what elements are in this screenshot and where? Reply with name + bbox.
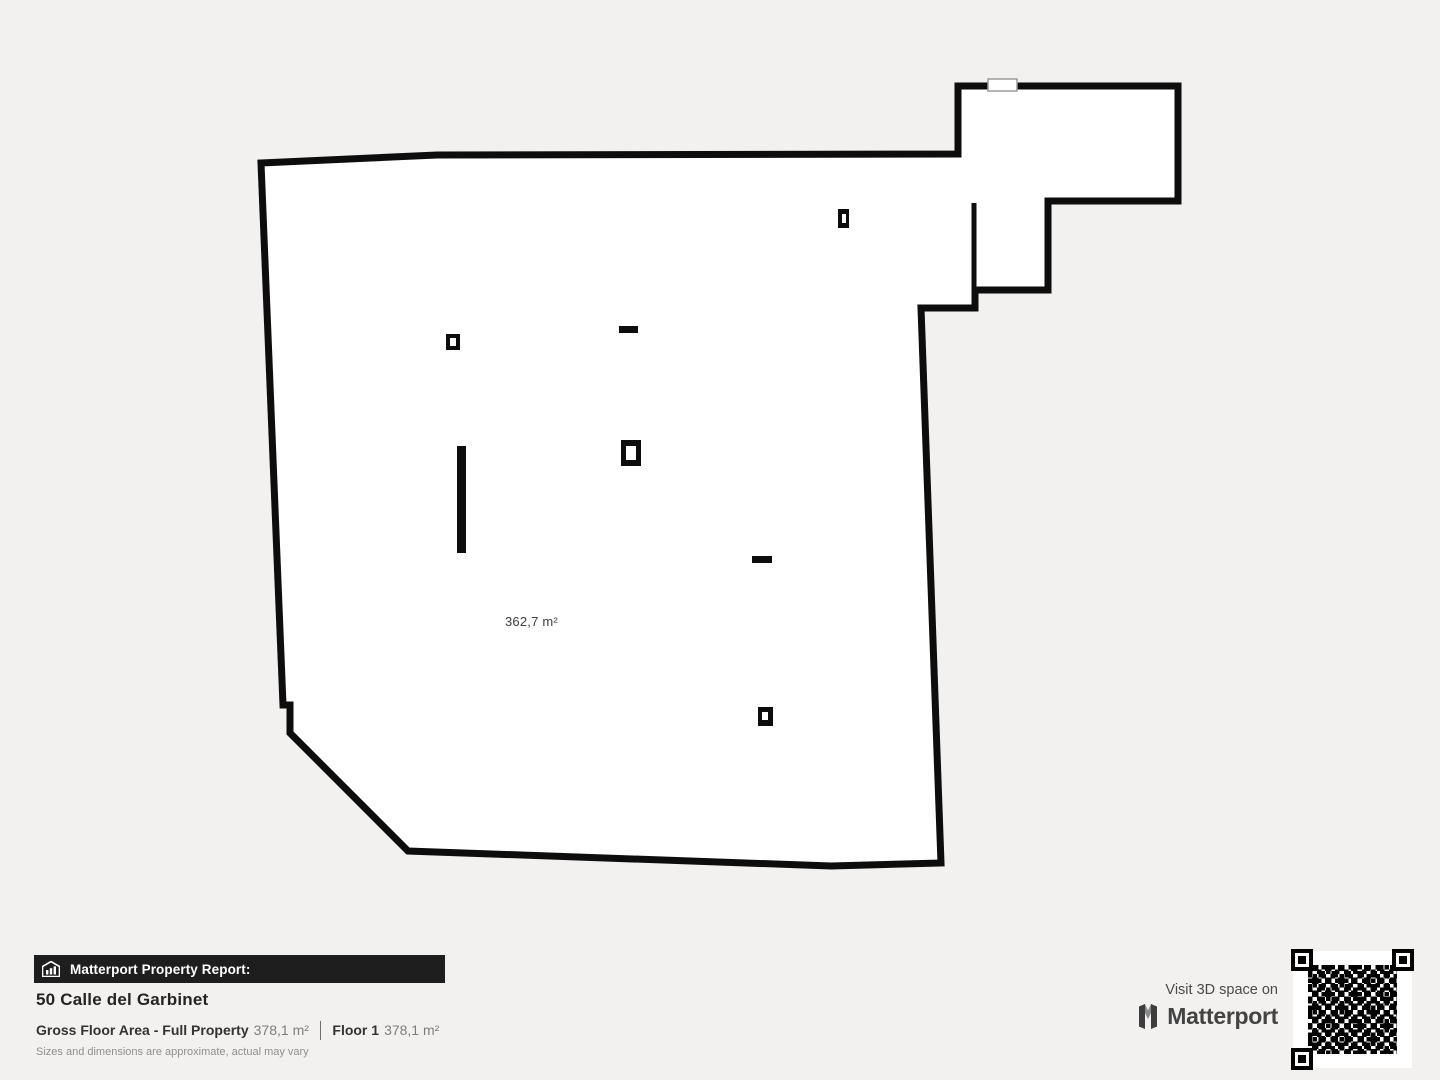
qr-finder-top-left bbox=[1291, 949, 1313, 971]
floor-outline bbox=[261, 86, 1178, 866]
matterport-logo: Matterport bbox=[1137, 1002, 1278, 1031]
area-stats: Gross Floor Area - Full Property 378,1 m… bbox=[36, 1020, 439, 1040]
area-label: 362,7 m² bbox=[505, 614, 575, 629]
matterport-m-icon bbox=[1137, 1002, 1159, 1031]
banner-label: Matterport Property Report: bbox=[70, 962, 250, 977]
floor-value: 378,1 m² bbox=[384, 1022, 439, 1038]
interior-wall bbox=[457, 446, 466, 553]
floor-plan bbox=[0, 0, 1440, 1080]
visit-3d-text: Visit 3D space on bbox=[1165, 982, 1278, 998]
wall-stub bbox=[619, 326, 638, 333]
floor-label: Floor 1 bbox=[332, 1022, 379, 1038]
disclaimer-text: Sizes and dimensions are approximate, ac… bbox=[36, 1046, 309, 1058]
column-pillar bbox=[838, 209, 849, 228]
house-with-bars-icon bbox=[42, 961, 60, 977]
stats-divider bbox=[320, 1021, 322, 1040]
qr-code bbox=[1293, 951, 1412, 1068]
gross-floor-area-value: 378,1 m² bbox=[254, 1022, 309, 1038]
qr-finder-bottom-left bbox=[1291, 1048, 1313, 1070]
property-report-page: 362,7 m² Matterport Property Report: 50 … bbox=[0, 0, 1440, 1080]
column-pillar bbox=[621, 440, 641, 466]
report-banner: Matterport Property Report: bbox=[34, 955, 445, 983]
door-opening bbox=[988, 79, 1017, 91]
property-address: 50 Calle del Garbinet bbox=[36, 990, 208, 1010]
qr-finder-top-right bbox=[1392, 949, 1414, 971]
wall-stub bbox=[752, 556, 772, 563]
gross-floor-area-label: Gross Floor Area - Full Property bbox=[36, 1022, 249, 1038]
column-pillar bbox=[758, 707, 773, 726]
qr-pattern bbox=[1308, 965, 1397, 1054]
column-pillar bbox=[446, 334, 460, 350]
matterport-wordmark: Matterport bbox=[1167, 1003, 1278, 1030]
